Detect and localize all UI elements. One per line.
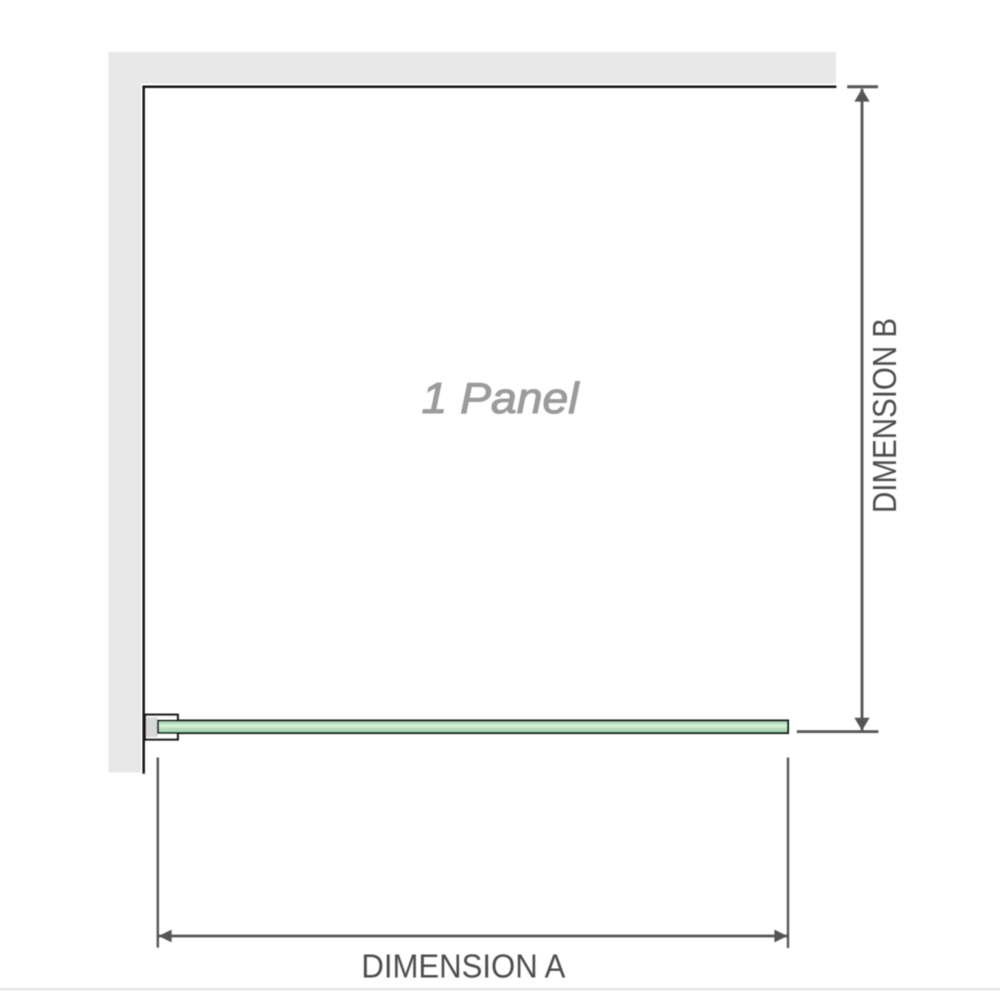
svg-text:DIMENSION B: DIMENSION B [867, 318, 904, 513]
svg-text:1 Panel: 1 Panel [422, 374, 580, 423]
svg-text:DIMENSION A: DIMENSION A [361, 948, 566, 985]
